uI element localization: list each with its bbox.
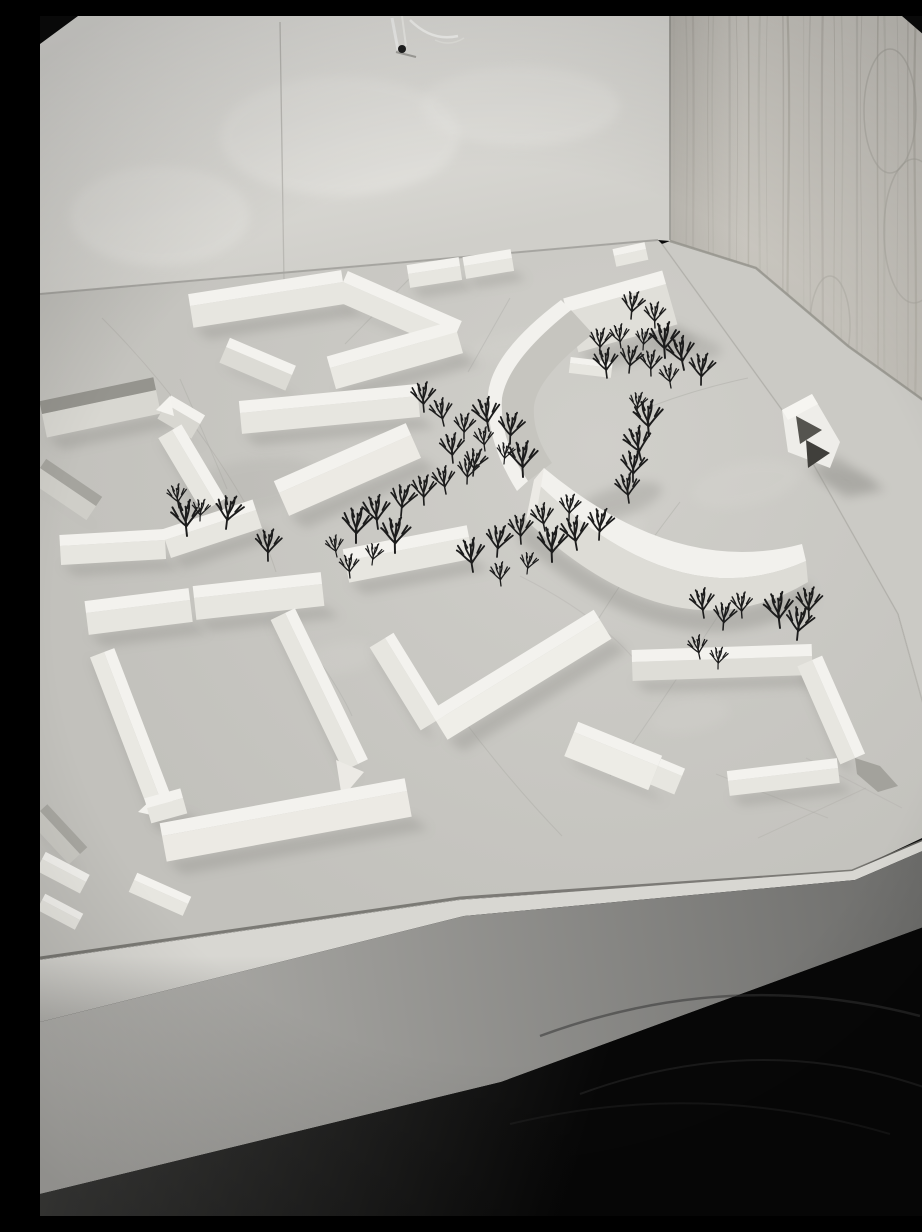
model-photograph	[40, 16, 922, 1216]
film-frame-overlay	[40, 16, 922, 1216]
vignette	[40, 16, 922, 1216]
scene-svg	[40, 16, 922, 1216]
